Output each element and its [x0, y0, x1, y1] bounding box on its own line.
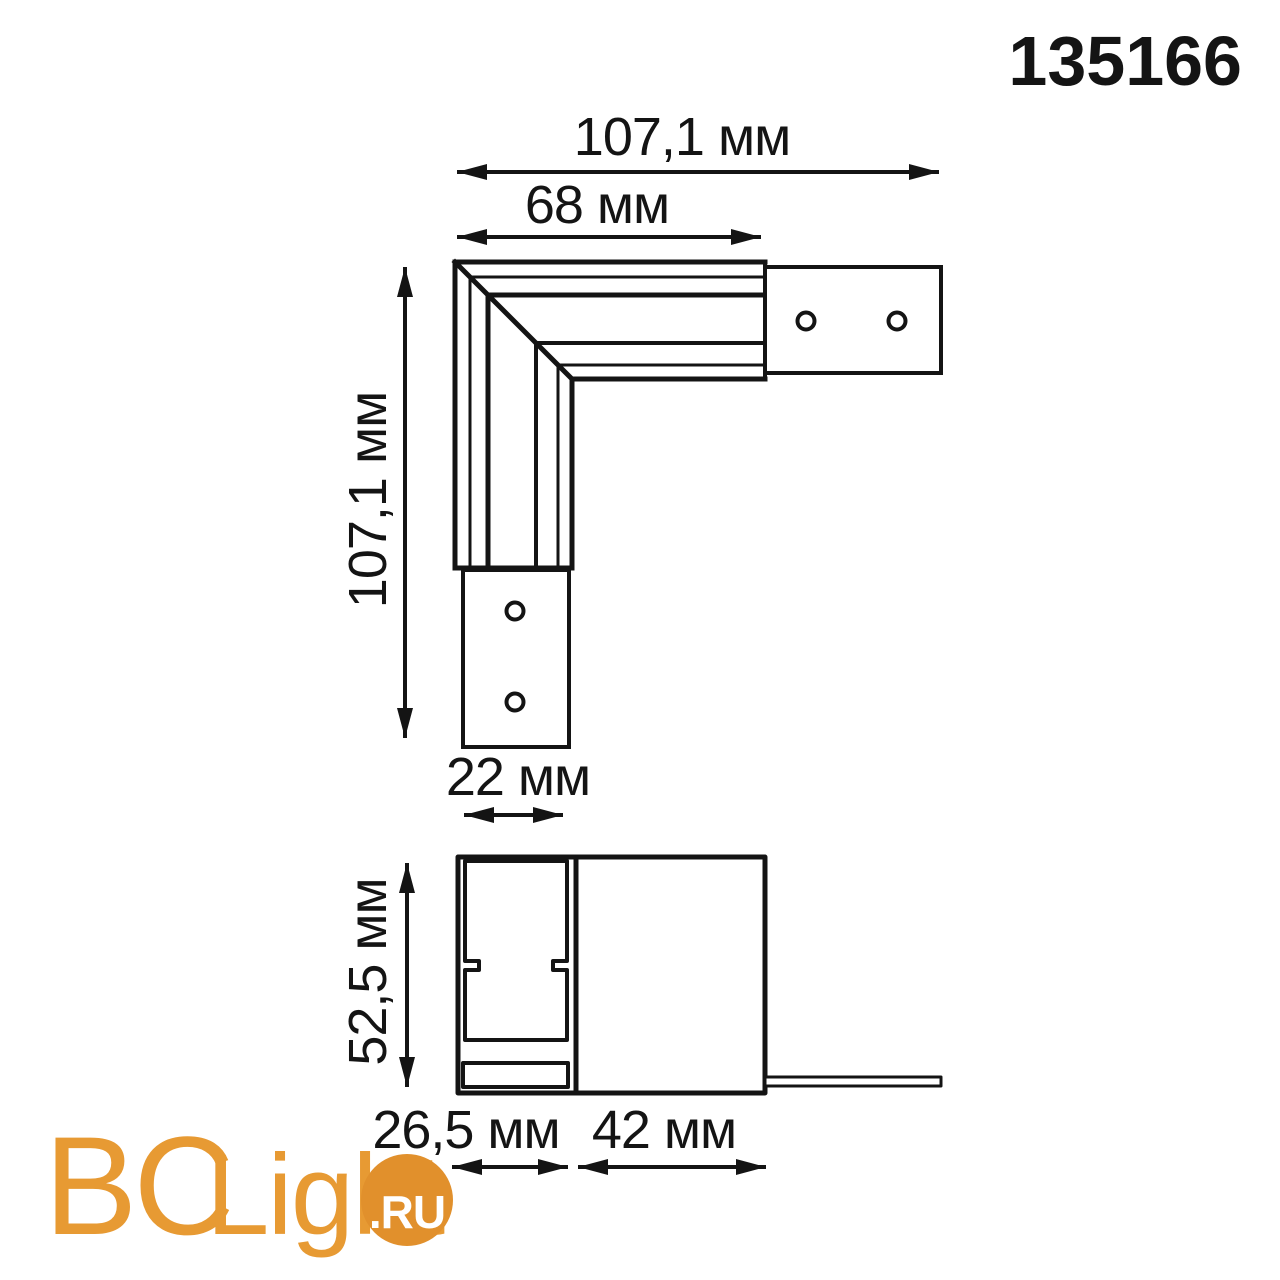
logo-text-ru: .RU [361, 1166, 453, 1258]
dim-label-overall-height: 107,1 мм [341, 392, 395, 608]
miter-diagonal-line [455, 262, 572, 379]
dim-label-section-height: 52,5 мм [341, 878, 395, 1065]
bottom-end-plate [463, 570, 569, 747]
dim-label-end-plate-width: 22 мм [446, 750, 590, 804]
logo-text-bc: BC [44, 1116, 230, 1256]
dim-label-arm-length: 68 мм [525, 178, 669, 232]
product-dimension-drawing-page: 135166 [0, 0, 1280, 1280]
section-outer-body [458, 857, 765, 1093]
dim-label-overall-width: 107,1 мм [574, 110, 790, 164]
top-view-l-connector [455, 262, 941, 747]
logo-ru-badge: .RU [361, 1154, 453, 1246]
side-mount-tab [765, 1077, 941, 1086]
dim-label-body-width: 42 мм [592, 1103, 736, 1157]
right-end-plate [765, 267, 941, 373]
section-view-drawing [458, 857, 941, 1093]
